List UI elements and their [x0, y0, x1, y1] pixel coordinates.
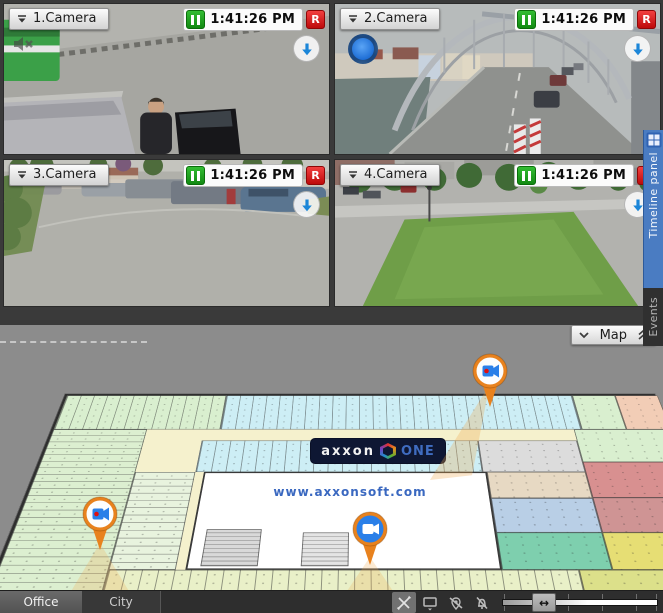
record-badge: R	[637, 10, 656, 29]
timestamp: 1:41:26 PM	[210, 168, 295, 183]
resize-arrows-icon: ↔	[539, 596, 549, 610]
map-tab-city[interactable]: City	[82, 591, 160, 613]
timeline-panel-label: Timeline panel	[647, 152, 660, 238]
pause-button[interactable]	[186, 166, 205, 185]
pause-button[interactable]	[517, 10, 536, 29]
camera-1-status: 1:41:26 PM R	[183, 8, 325, 31]
timestamp: 1:41:26 PM	[541, 12, 626, 27]
camera-name: 4.Camera	[364, 167, 427, 182]
map-tab-label: Office	[23, 595, 58, 609]
mute-alarms-button[interactable]	[470, 592, 494, 613]
map-tab-label: City	[109, 595, 133, 609]
zoom-slider-handle[interactable]: ↔	[532, 593, 556, 612]
zoom-slider-track[interactable]	[502, 599, 658, 606]
map-pin-slash-icon	[448, 595, 464, 611]
record-badge: R	[306, 166, 325, 185]
collapse-triangle-icon	[348, 170, 358, 180]
axxon-one-window: 1.Camera 1:41:26 PM R	[0, 0, 663, 613]
camera-3-label-button[interactable]: 3.Camera	[9, 164, 109, 186]
arrow-down-icon	[631, 42, 645, 56]
record-badge: R	[306, 10, 325, 29]
events-panel-label: Events	[647, 297, 660, 337]
tab-timeline-panel[interactable]: Timeline panel	[643, 130, 663, 288]
collapse-triangle-icon	[17, 14, 27, 24]
fit-to-window-button[interactable]	[392, 592, 416, 613]
camera-tile-2[interactable]: 2.Camera 1:41:26 PM R	[334, 3, 661, 155]
camera-3-status: 1:41:26 PM R	[183, 164, 325, 187]
floor-plan-room	[579, 570, 663, 590]
blue-dot-indicator[interactable]	[348, 34, 378, 64]
map-button-label: Map	[600, 328, 627, 343]
map-bottom-bar: Office City	[0, 590, 663, 613]
camera-marker-bottom-center[interactable]	[350, 510, 390, 566]
tab-events-panel[interactable]: Events	[643, 288, 663, 346]
timestamp: 1:41:26 PM	[541, 168, 626, 183]
camera-marker-bottom-left[interactable]	[80, 495, 120, 551]
floor-plan-stairwell	[301, 533, 349, 567]
time-box: 1:41:26 PM	[183, 164, 303, 187]
map-zoom-slider[interactable]: ↔	[502, 592, 658, 613]
time-box: 1:41:26 PM	[514, 164, 634, 187]
arrow-down-icon	[300, 198, 314, 212]
camera-grid: 1.Camera 1:41:26 PM R	[0, 0, 663, 325]
floor-plan-room	[593, 498, 663, 533]
monitor-icon	[422, 595, 438, 611]
time-box: 1:41:26 PM	[183, 8, 303, 31]
fit-to-window-icon	[396, 595, 412, 611]
map-tab-office[interactable]: Office	[0, 591, 82, 613]
floor-plan-room	[54, 395, 227, 429]
arrow-down-icon	[300, 42, 314, 56]
camera-name: 1.Camera	[33, 11, 96, 26]
pause-button[interactable]	[517, 166, 536, 185]
hide-map-markers-button[interactable]	[444, 592, 468, 613]
download-arrow-button[interactable]	[624, 35, 651, 62]
pause-button[interactable]	[186, 10, 205, 29]
camera-tile-3[interactable]: 3.Camera 1:41:26 PM R	[3, 159, 330, 307]
collapse-triangle-icon	[348, 14, 358, 24]
download-arrow-button[interactable]	[293, 191, 320, 218]
floor-plan-room	[478, 441, 586, 472]
audio-muted-icon[interactable]	[12, 35, 36, 57]
floor-plan-room	[496, 533, 612, 570]
camera-tile-1[interactable]: 1.Camera 1:41:26 PM R	[3, 3, 330, 155]
camera-4-label-button[interactable]: 4.Camera	[340, 164, 440, 186]
axxon-one-logo: axxon ONE	[310, 438, 446, 464]
collapse-triangle-icon	[17, 170, 27, 180]
floor-plan-room	[602, 533, 663, 570]
layout-grid-icon	[646, 132, 662, 148]
time-box: 1:41:26 PM	[514, 8, 634, 31]
chevron-down-icon	[579, 331, 589, 339]
logo-text-axxon: axxon	[321, 444, 375, 459]
camera-name: 3.Camera	[33, 167, 96, 182]
floor-plan-room	[491, 498, 602, 532]
floor-plan-room	[97, 570, 588, 590]
map-panel: axxon ONE www.axxonsoft.com	[0, 325, 663, 590]
timestamp: 1:41:26 PM	[210, 12, 295, 27]
floor-plan-stairwell	[200, 529, 262, 566]
logo-text-one: ONE	[401, 444, 435, 459]
floor-plan-room	[220, 395, 582, 429]
tab-divider	[160, 591, 161, 613]
map-plane-edge-dashed-line	[0, 341, 147, 343]
camera-marker-top-right[interactable]	[470, 352, 510, 408]
floor-plan-room	[574, 429, 663, 462]
logo-hexagon-icon	[380, 443, 396, 459]
camera-2-label-button[interactable]: 2.Camera	[340, 8, 440, 30]
download-arrow-button[interactable]	[293, 35, 320, 62]
right-panel-tabs: Timeline panel Events	[643, 130, 663, 346]
monitor-select-button[interactable]	[418, 592, 442, 613]
camera-4-status: 1:41:26 PM R	[514, 164, 656, 187]
camera-2-status: 1:41:26 PM R	[514, 8, 656, 31]
bell-slash-icon	[474, 595, 490, 611]
camera-1-label-button[interactable]: 1.Camera	[9, 8, 109, 30]
camera-tile-4[interactable]: 4.Camera 1:41:26 PM R	[334, 159, 661, 307]
camera-name: 2.Camera	[364, 11, 427, 26]
